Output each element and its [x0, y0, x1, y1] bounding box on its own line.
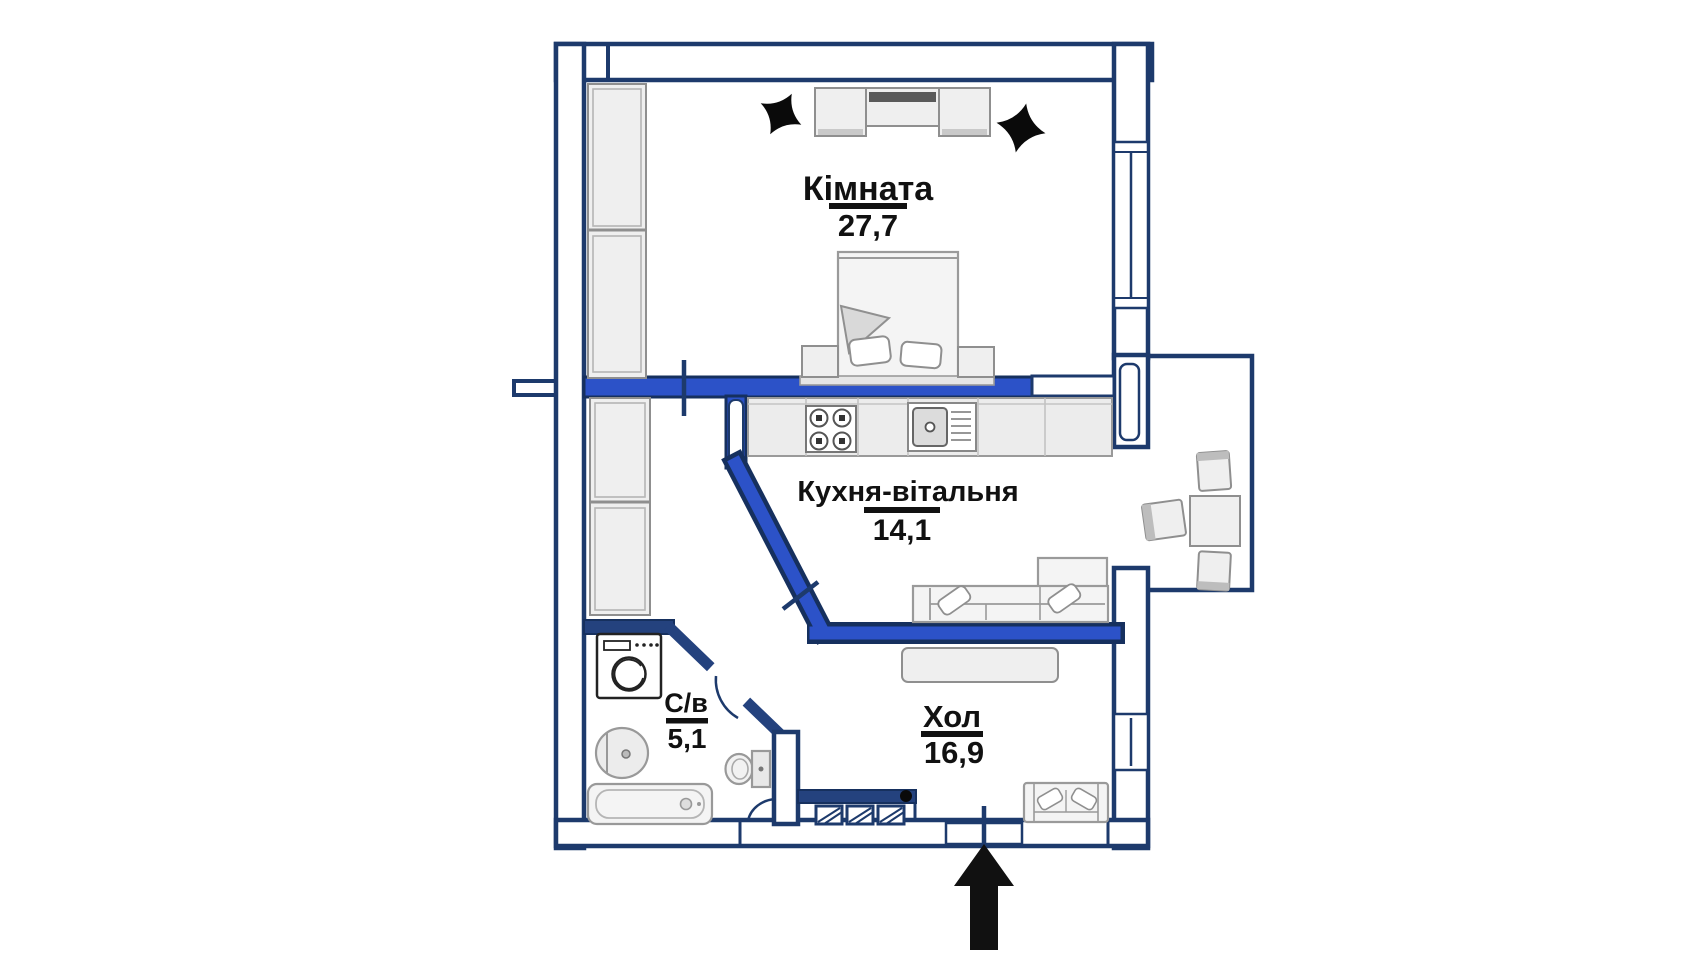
corner-sofa	[913, 558, 1108, 622]
kitchen-sink	[908, 403, 976, 451]
hall-name: Хол	[923, 699, 981, 734]
stool	[1197, 451, 1232, 491]
wash-basin	[596, 728, 648, 778]
floor-plan-page: Кімната 27,7 Кухня-вітальня 14,1 Хол 16,…	[0, 0, 1700, 956]
room-furniture	[588, 83, 1051, 385]
kitchen-name: Кухня-вітальня	[797, 476, 1018, 508]
window-room	[1114, 142, 1148, 308]
wall-left	[556, 44, 584, 848]
ceiling-light-icon	[991, 98, 1050, 157]
room-name: Кімната	[803, 170, 934, 208]
tv-stand	[815, 88, 990, 136]
label-hall: Хол 16,9	[921, 699, 984, 770]
built-in-closet	[816, 806, 904, 824]
kitchen-furniture	[590, 398, 1112, 622]
left-ledge	[514, 381, 556, 395]
wardrobe	[590, 398, 650, 615]
wall-right-lower	[1114, 568, 1148, 848]
pillow	[900, 341, 942, 368]
nightstand	[802, 346, 838, 377]
window-hall	[1114, 714, 1148, 770]
faucet	[926, 423, 935, 432]
bathroom-name: С/в	[664, 688, 708, 718]
room-area: 27,7	[838, 208, 898, 243]
entrance-door	[946, 806, 1022, 846]
label-bathroom: С/в 5,1	[664, 688, 708, 754]
wardrobe	[588, 84, 646, 378]
entrance-arrow	[954, 844, 1014, 950]
stool	[1142, 499, 1187, 540]
closet-top-wall	[798, 790, 916, 803]
nightstand	[958, 347, 994, 377]
loveseat	[1024, 783, 1108, 822]
label-room: Кімната 27,7	[803, 170, 934, 243]
wall-top	[556, 44, 1152, 80]
dining-nook	[1142, 356, 1252, 591]
label-kitchen-living: Кухня-вітальня 14,1	[797, 476, 1018, 547]
label-underline	[864, 507, 940, 513]
floor-plan: Кімната 27,7 Кухня-вітальня 14,1 Хол 16,…	[0, 0, 1700, 956]
tv	[869, 92, 936, 102]
wall-bathroom-right	[774, 732, 798, 824]
washing-machine	[597, 634, 661, 698]
bathtub	[588, 784, 712, 824]
stool	[1197, 551, 1231, 591]
ceiling-light-icon	[750, 83, 812, 145]
wall-bathroom-top	[584, 620, 674, 634]
stove	[806, 406, 856, 452]
closet-door-pivot	[900, 790, 912, 802]
pillow	[849, 336, 892, 367]
console-table	[902, 648, 1058, 682]
dining-table	[1190, 496, 1240, 546]
hall-area: 16,9	[924, 735, 984, 770]
wall-room-kitchen-right	[1032, 376, 1114, 396]
toilet	[726, 751, 771, 787]
balcony-door	[1120, 364, 1139, 440]
kitchen-area: 14,1	[873, 514, 931, 547]
bathroom-area: 5,1	[668, 723, 707, 754]
